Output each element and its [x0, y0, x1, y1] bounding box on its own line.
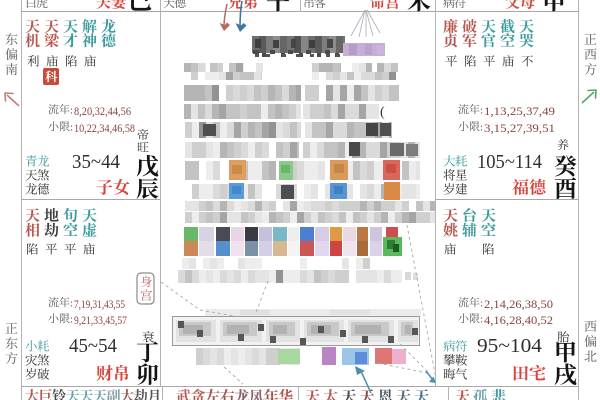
svg-text:10,22,34,46,58: 10,22,34,46,58	[74, 121, 135, 135]
svg-text:8,20,32,44,56: 8,20,32,44,56	[74, 104, 131, 118]
svg-text::: :	[70, 314, 73, 326]
svg-text:(: (	[380, 105, 385, 120]
svg-text:2,14,26,38,50: 2,14,26,38,50	[484, 297, 553, 311]
svg-text:105~114: 105~114	[477, 151, 542, 173]
svg-text::: :	[480, 122, 483, 134]
svg-text::: :	[70, 298, 73, 310]
svg-text::: :	[70, 105, 73, 117]
svg-text::: :	[480, 105, 483, 117]
svg-text:95~104: 95~104	[477, 335, 542, 357]
svg-text:45~54: 45~54	[69, 335, 117, 357]
svg-text:3,15,27,39,51: 3,15,27,39,51	[484, 121, 555, 135]
svg-text:4,16,28,40,52: 4,16,28,40,52	[484, 313, 553, 327]
svg-text::: :	[480, 314, 483, 326]
svg-text::: :	[480, 298, 483, 310]
svg-text::: :	[70, 122, 73, 134]
svg-text:1,13,25,37,49: 1,13,25,37,49	[484, 104, 555, 118]
svg-text:7,19,31,43,55: 7,19,31,43,55	[74, 297, 125, 311]
svg-text:9,21,33,45,57: 9,21,33,45,57	[74, 313, 127, 327]
svg-text:35~44: 35~44	[72, 151, 120, 173]
